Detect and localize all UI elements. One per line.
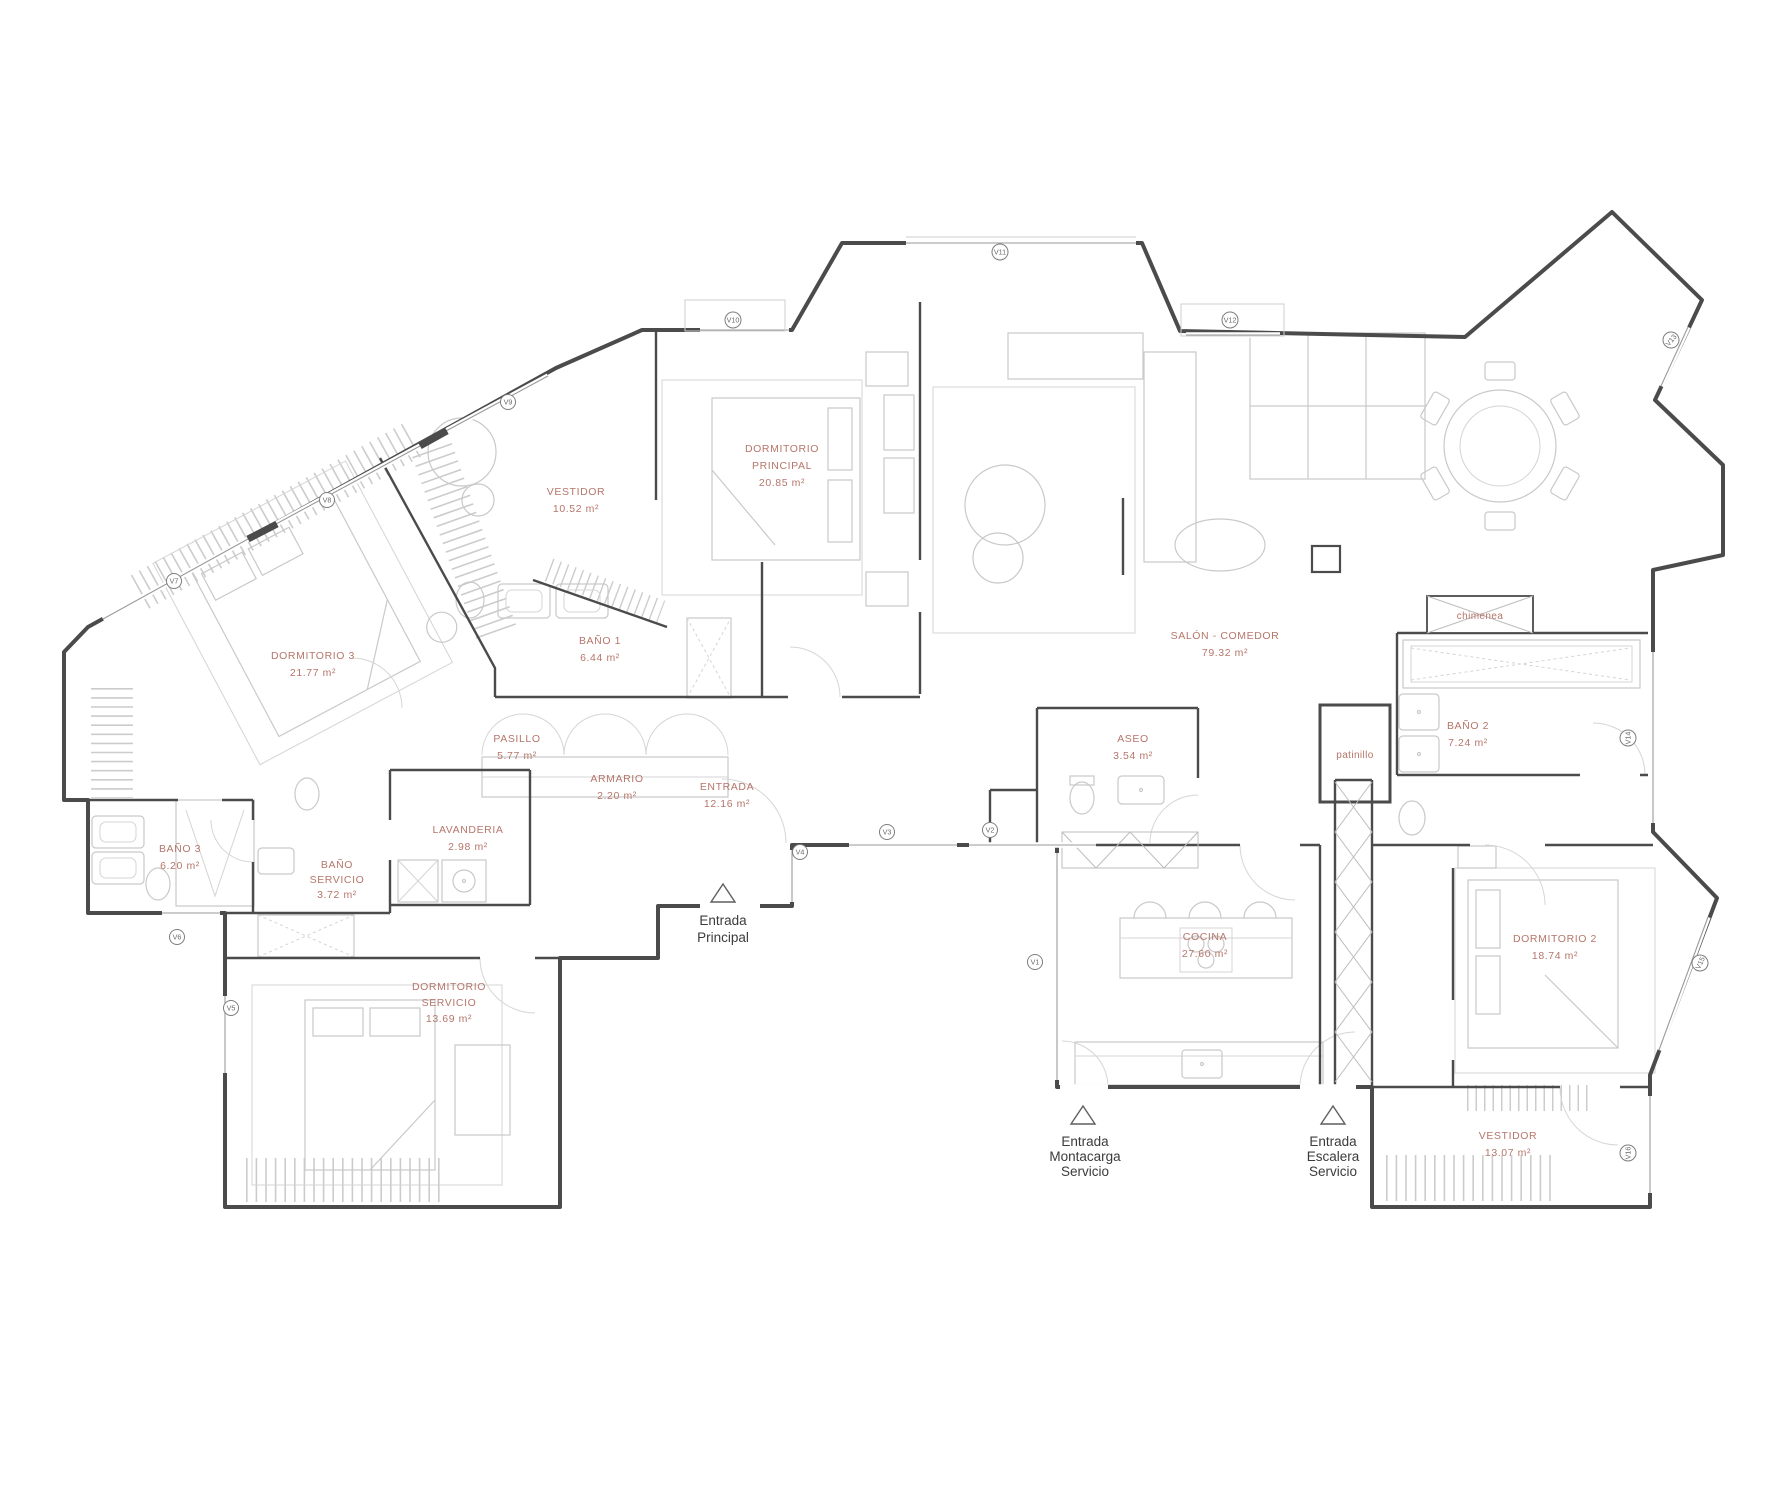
room-label-bano-1: BAÑO 1 6.44 m²: [579, 634, 621, 664]
room-name: BAÑO 1: [579, 634, 621, 647]
floor-plan-drawing: DORMITORIO 3 21.77 m² VESTIDOR 10.52 m² …: [0, 0, 1784, 1496]
room-area: 5.77 m²: [497, 750, 537, 762]
room-label-aseo: ASEO 3.54 m²: [1113, 733, 1153, 762]
room-name: PRINCIPAL: [752, 460, 812, 472]
window-marker-v1: V1: [1028, 955, 1043, 970]
entrance-label: Entrada: [1309, 1134, 1357, 1149]
room-name: PASILLO: [493, 733, 540, 745]
room-area: 13.07 m²: [1485, 1147, 1531, 1159]
fireplace-block: [1312, 546, 1340, 572]
svg-text:V12: V12: [1224, 316, 1237, 325]
room-area: 12.16 m²: [704, 798, 750, 810]
room-name: SERVICIO: [310, 874, 365, 886]
svg-text:V11: V11: [994, 248, 1006, 257]
window-marker-v7: V7: [167, 574, 182, 589]
room-label-bano-servicio: BAÑO SERVICIO 3.72 m²: [310, 858, 365, 901]
room-name: ARMARIO: [590, 773, 643, 785]
svg-text:V7: V7: [170, 577, 179, 586]
entrance-triangle-icon: [1321, 1106, 1345, 1124]
wardrobe-hatch-layer: [112, 440, 1588, 1180]
room-label-dormitorio-servicio: DORMITORIO SERVICIO 13.69 m²: [412, 981, 486, 1025]
room-name: SERVICIO: [422, 997, 477, 1009]
entrance-label: Montacarga: [1049, 1149, 1121, 1164]
entrance-label: Entrada: [1061, 1134, 1109, 1149]
entrance-label: Escalera: [1307, 1149, 1360, 1164]
room-area: 79.32 m²: [1202, 647, 1248, 659]
room-label-patinillo: patinillo: [1336, 750, 1374, 761]
room-name: LAVANDERIA: [433, 824, 504, 836]
svg-text:V16: V16: [1624, 1147, 1633, 1160]
svg-text:V3: V3: [883, 828, 892, 837]
exterior-walls: [64, 212, 1723, 1207]
window-marker-v11: V11: [992, 244, 1008, 260]
room-label-dormitorio-3: DORMITORIO 3 21.77 m²: [271, 650, 355, 679]
room-area: 20.85 m²: [759, 477, 805, 489]
window-marker-v3: V3: [880, 825, 895, 840]
window-markers-layer: V1 V2 V3 V4 V5 V6 V7 V8 V9 V10 V11 V12 V…: [167, 244, 1711, 1161]
room-label-dormitorio-principal: DORMITORIO PRINCIPAL 20.85 m²: [745, 443, 819, 489]
room-area: 3.72 m²: [317, 889, 357, 901]
room-label-lavanderia: LAVANDERIA 2.98 m²: [433, 824, 504, 853]
room-name: DORMITORIO 2: [1513, 933, 1597, 945]
salon-sofa-group-2: [1175, 333, 1425, 571]
svg-text:V1: V1: [1031, 958, 1040, 967]
room-area: 6.20 m²: [160, 860, 200, 872]
svg-text:V10: V10: [727, 316, 740, 325]
room-name: BAÑO: [321, 858, 353, 871]
svg-text:V14: V14: [1624, 732, 1633, 745]
room-area: 13.69 m²: [426, 1013, 472, 1025]
svg-text:V9: V9: [504, 398, 513, 407]
room-name: VESTIDOR: [1479, 1130, 1537, 1142]
room-area: 18.74 m²: [1532, 950, 1578, 962]
window-marker-v5: V5: [224, 1001, 239, 1016]
window-marker-v10: V10: [725, 312, 741, 328]
entrance-label: Entrada: [699, 913, 747, 928]
room-label-cocina: COCINA 27.60 m²: [1182, 931, 1228, 960]
room-name: BAÑO 3: [159, 842, 201, 855]
aseo-fixtures: [1070, 776, 1164, 814]
windows-layer: [103, 237, 1708, 1193]
room-label-chimenea: chimenea: [1457, 611, 1504, 622]
window-marker-v16: V16: [1620, 1145, 1636, 1161]
room-label-armario: ARMARIO 2.20 m²: [590, 773, 643, 802]
window-marker-v8: V8: [320, 493, 335, 508]
room-label-vestidor-2: VESTIDOR 13.07 m²: [1479, 1130, 1537, 1159]
window-marker-v14: V14: [1620, 730, 1636, 746]
svg-text:V6: V6: [173, 933, 182, 942]
room-label-vestidor-1: VESTIDOR 10.52 m²: [547, 486, 605, 515]
room-name: ENTRADA: [700, 781, 754, 793]
entrance-label: Servicio: [1061, 1164, 1109, 1179]
bano-2-fixtures: [1399, 640, 1640, 835]
entrance-triangle-icon: [711, 884, 735, 902]
room-name: COCINA: [1183, 931, 1227, 943]
bed-dormitorio-3: [153, 451, 472, 765]
salon-sofa-group: [933, 333, 1196, 633]
window-marker-v9: V9: [501, 395, 516, 410]
entrance-montacarga-servicio: Entrada Montacarga Servicio: [1049, 1106, 1121, 1179]
room-label-bano-2: BAÑO 2 7.24 m²: [1447, 719, 1489, 749]
floor-plan-page: DORMITORIO 3 21.77 m² VESTIDOR 10.52 m² …: [0, 0, 1784, 1496]
room-name: DORMITORIO: [745, 443, 819, 455]
room-label-pasillo: PASILLO 5.77 m²: [493, 733, 540, 762]
room-name: VESTIDOR: [547, 486, 605, 498]
entrance-markers-layer: Entrada Principal Entrada Montacarga Ser…: [697, 884, 1360, 1179]
room-area: 10.52 m²: [553, 503, 599, 515]
window-marker-v2: V2: [983, 823, 998, 838]
room-label-dormitorio-2: DORMITORIO 2 18.74 m²: [1513, 933, 1597, 962]
svg-text:V8: V8: [323, 496, 332, 505]
room-area: 7.24 m²: [1448, 737, 1488, 749]
cocina-furniture: [1075, 902, 1323, 1085]
room-label-bano-3: BAÑO 3 6.20 m²: [159, 842, 201, 872]
door-arcs-layer: [211, 647, 1645, 1145]
furniture-layer: [92, 333, 1655, 1185]
room-name: DORMITORIO 3: [271, 650, 355, 662]
room-label-entrada: ENTRADA 12.16 m²: [700, 781, 754, 810]
room-area: 27.60 m²: [1182, 948, 1228, 960]
room-area: 3.54 m²: [1113, 750, 1153, 762]
entrance-escalera-servicio: Entrada Escalera Servicio: [1307, 1106, 1360, 1179]
svg-text:V5: V5: [227, 1004, 236, 1013]
lavanderia-appliances: [398, 860, 486, 902]
dining-table: [1420, 362, 1580, 530]
room-area: 2.98 m²: [448, 841, 488, 853]
room-area: 21.77 m²: [290, 667, 336, 679]
svg-text:V4: V4: [796, 848, 805, 857]
entrance-triangle-icon: [1071, 1106, 1095, 1124]
room-area: 6.44 m²: [580, 652, 620, 664]
entrance-principal: Entrada Principal: [697, 884, 749, 945]
room-name: DORMITORIO: [412, 981, 486, 993]
window-marker-v12: V12: [1222, 312, 1238, 328]
svg-text:V2: V2: [986, 826, 995, 835]
room-label-salon-comedor: SALÓN - COMEDOR 79.32 m²: [1171, 629, 1280, 659]
walls-layer: [64, 212, 1723, 1207]
room-name: ASEO: [1117, 733, 1149, 745]
room-name: SALÓN - COMEDOR: [1171, 629, 1280, 642]
window-marker-v4: V4: [793, 845, 808, 860]
entrance-label: Principal: [697, 930, 749, 945]
room-name: BAÑO 2: [1447, 719, 1489, 732]
room-area: 2.20 m²: [597, 790, 637, 802]
entrance-label: Servicio: [1309, 1164, 1357, 1179]
window-marker-v6: V6: [170, 930, 185, 945]
